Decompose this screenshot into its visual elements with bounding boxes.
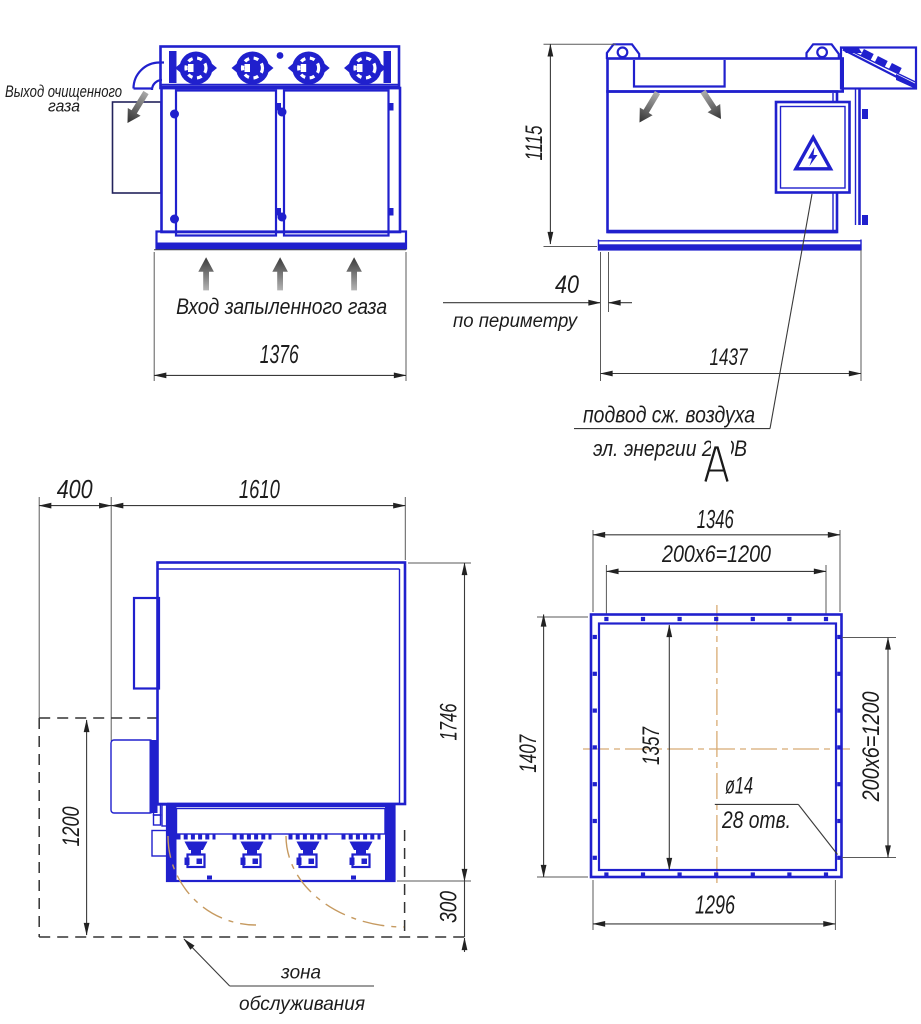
svg-text:обслуживания: обслуживания <box>239 993 366 1015</box>
svg-text:по периметру: по периметру <box>453 311 578 332</box>
svg-text:300: 300 <box>436 890 463 923</box>
svg-text:зона: зона <box>280 961 321 983</box>
svg-text:ø14: ø14 <box>725 773 753 800</box>
svg-text:1296: 1296 <box>695 889 735 919</box>
svg-text:1746: 1746 <box>436 703 463 740</box>
svg-text:1407: 1407 <box>515 734 542 773</box>
svg-text:400: 400 <box>57 474 93 504</box>
svg-text:28 отв.: 28 отв. <box>721 807 791 834</box>
svg-text:200х6=1200: 200х6=1200 <box>661 541 771 568</box>
svg-text:40: 40 <box>555 271 579 299</box>
svg-text:подвод сж. воздуха: подвод сж. воздуха <box>583 402 755 428</box>
svg-text:200х6=1200: 200х6=1200 <box>858 691 885 802</box>
svg-text:1376: 1376 <box>260 339 299 369</box>
svg-text:1346: 1346 <box>697 504 734 534</box>
svg-text:1437: 1437 <box>710 344 749 371</box>
svg-text:газа: газа <box>48 97 80 116</box>
svg-text:1357: 1357 <box>638 726 665 765</box>
svg-text:1610: 1610 <box>239 474 280 504</box>
svg-text:Вход запыленного газа: Вход запыленного газа <box>176 294 387 319</box>
svg-text:1115: 1115 <box>521 125 548 160</box>
svg-text:1200: 1200 <box>58 806 85 846</box>
